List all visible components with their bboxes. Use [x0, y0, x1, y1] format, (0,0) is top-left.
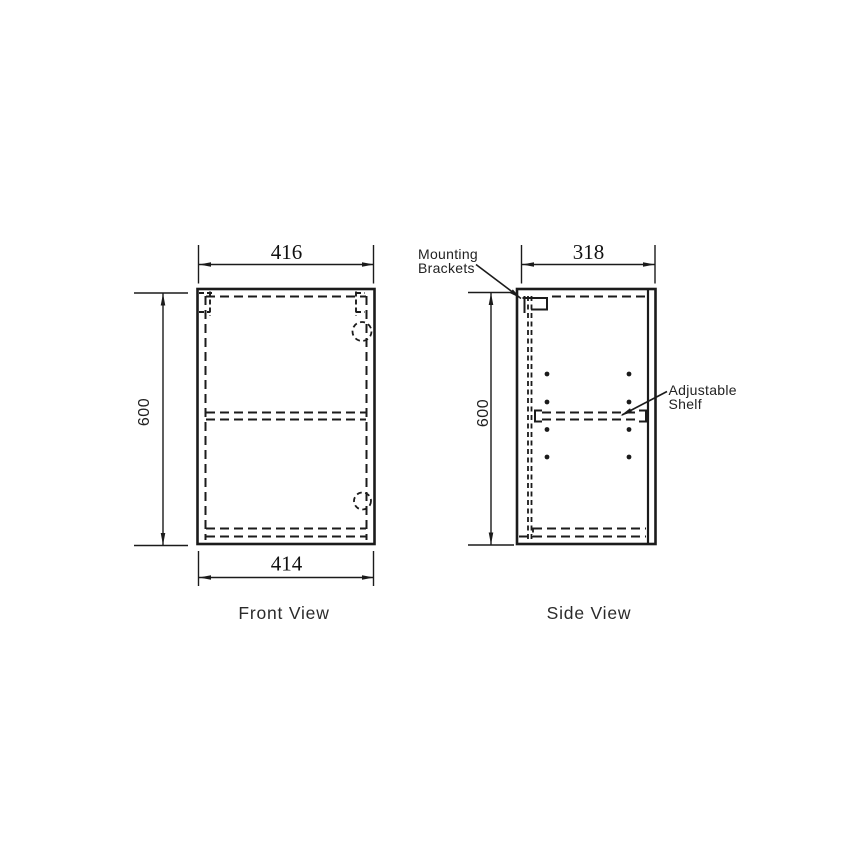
front-view-dim-bottom-width: 414 — [199, 551, 375, 586]
side-view-back-panel-hidden — [528, 296, 532, 540]
mounting-brackets-label-line2: Brackets — [418, 260, 475, 276]
front-view-dim-height: 600 — [134, 293, 188, 546]
front-view-hidden-lines — [206, 296, 367, 540]
front-view-dim-top-width: 416 — [199, 240, 375, 284]
front-view-dim-top-width-value: 416 — [271, 240, 303, 264]
callout-adjustable-shelf: Adjustable Shelf — [621, 382, 737, 416]
adjustable-shelf-label-line2: Shelf — [669, 396, 702, 412]
front-view-hinge-hole-top — [353, 322, 372, 341]
side-view-dim-top-width-value: 318 — [573, 240, 605, 264]
adjustable-shelf-leader-arrow — [621, 408, 633, 416]
front-view-dim-bottom-width-value: 414 — [271, 552, 303, 576]
front-view-dim-height-value: 600 — [136, 398, 153, 426]
side-view-shelf-pin-holes — [545, 372, 632, 460]
front-view-cabinet-outline — [198, 289, 375, 544]
side-view-dim-top-width: 318 — [522, 240, 656, 284]
side-view-drawing: 318 600 Side View — [468, 240, 656, 623]
side-view-label: Side View — [547, 603, 632, 623]
side-view-dim-height: 600 — [468, 293, 514, 546]
front-view-drawing: 416 414 600 Front View — [134, 240, 375, 623]
cabinet-drawing-svg: 416 414 600 Front View — [0, 0, 860, 860]
side-view-cabinet-outline — [517, 289, 656, 544]
side-view-mounting-bracket — [523, 296, 548, 313]
callout-mounting-brackets: Mounting Brackets — [418, 246, 521, 299]
front-view-hinge-hole-bottom — [354, 493, 371, 510]
front-view-mounting-bracket-right — [356, 292, 365, 317]
front-view-label: Front View — [238, 603, 329, 623]
side-view-bottom-panel-hidden — [519, 528, 646, 538]
technical-drawing-page: 416 414 600 Front View — [0, 0, 860, 860]
side-view-dim-height-value: 600 — [475, 399, 492, 427]
